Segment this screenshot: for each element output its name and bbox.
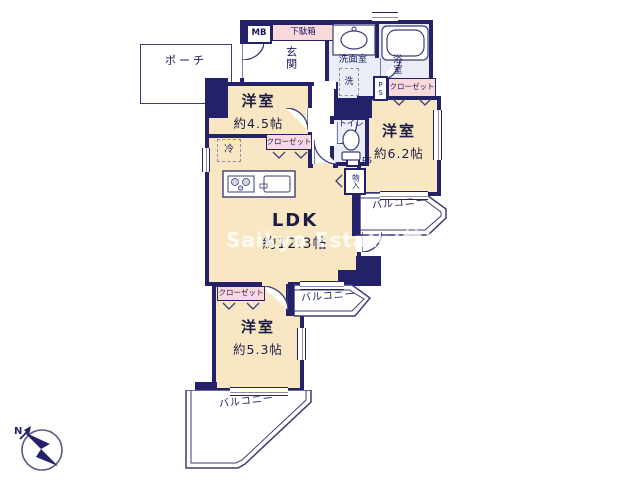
window xyxy=(202,148,210,172)
closet-bottom-label: クローゼット xyxy=(219,289,264,298)
window-balcony-middle xyxy=(300,281,344,290)
sink-icon xyxy=(332,24,376,56)
door-entrance-2 xyxy=(242,60,264,78)
washroom-label: 洗面室 xyxy=(330,55,376,66)
storage-label: 物入 xyxy=(351,174,360,189)
closet-middle-label: クローゼット xyxy=(267,138,312,147)
entrance-label: 玄関 xyxy=(284,46,297,70)
bathtub-icon xyxy=(381,25,429,61)
ps-top-label: PS xyxy=(376,81,384,97)
bathroom-label: 浴室 xyxy=(390,54,401,75)
closet-middle: クローゼット xyxy=(266,134,312,150)
shoe-cabinet-label: 下駄箱 xyxy=(290,28,316,38)
closet-door-chevron xyxy=(246,302,260,310)
western-room-3-label: 洋室 約5.3帖 xyxy=(212,316,304,358)
washer-space: 洗 xyxy=(339,68,359,96)
porch-label: ポーチ xyxy=(150,55,222,68)
closet-bottom: クローゼット xyxy=(217,286,265,301)
washer-label: 洗 xyxy=(344,77,353,87)
western-room-1-label: 洋室 約4.5帖 xyxy=(205,90,312,132)
closet-top-label: クローゼット xyxy=(390,83,435,92)
fridge-space: 冷 xyxy=(217,139,241,162)
compass-north-text: N xyxy=(14,426,22,437)
wall-chunk xyxy=(334,100,372,118)
closet-door-chevron xyxy=(392,98,406,106)
meter-box: MB xyxy=(246,24,272,44)
door-entrance-1 xyxy=(242,42,264,60)
closet-door-chevron xyxy=(294,151,308,159)
kitchen-counter xyxy=(222,170,296,198)
closet-door-chevron xyxy=(418,98,432,106)
shoe-cabinet: 下駄箱 xyxy=(272,24,334,41)
opening-entrance-hall xyxy=(314,81,336,89)
watermark: Saikyo Estate(株) xyxy=(226,224,434,253)
door-room53 xyxy=(262,286,288,310)
closet-top: クローゼット xyxy=(388,78,436,97)
opening-hall-ldk xyxy=(313,163,333,170)
storage-door-chevron xyxy=(335,174,343,188)
closet-door-chevron xyxy=(222,302,236,310)
mb-label: MB xyxy=(252,29,267,39)
compass-icon: N xyxy=(12,420,68,476)
ps-top-box: PS xyxy=(373,76,388,101)
storage-box: 物入 xyxy=(344,168,366,195)
western-room-2-label: 洋室 約6.2帖 xyxy=(357,120,441,162)
fridge-label: 冷 xyxy=(224,145,234,156)
window xyxy=(372,12,398,22)
floor-plan: MB 下駄箱 PS クローゼット クローゼット クローゼット PS 物入 冷 洗 xyxy=(0,0,640,480)
closet-door-chevron xyxy=(272,151,286,159)
door-hall-ldk xyxy=(314,140,337,164)
